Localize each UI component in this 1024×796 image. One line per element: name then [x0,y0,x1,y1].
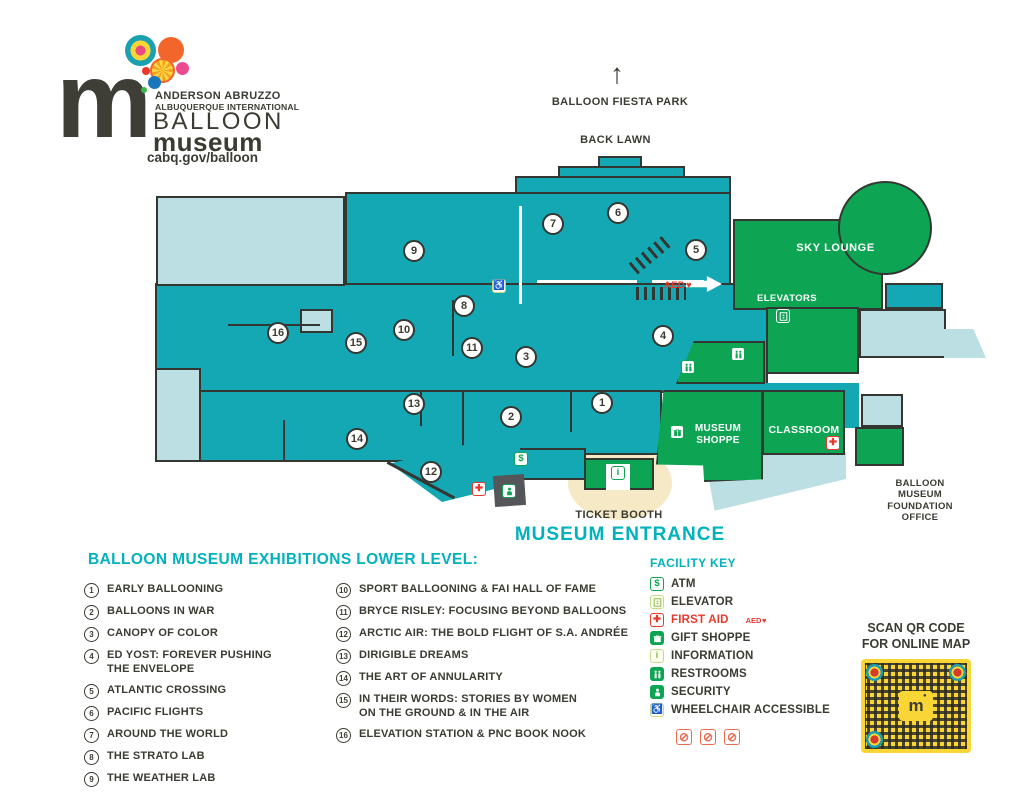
facility-key-label: RESTROOMS [671,668,747,680]
exhibition-item-1: 1EARLY BALLOONING [84,583,334,598]
floor-map: SKY LOUNGE ELEVATORS MUSEUM SHOPPE CLASS… [0,0,1024,560]
facility-key-item: ♿WHEELCHAIR ACCESSIBLE [650,703,860,717]
security-icon [650,685,664,699]
elevator-icon [650,595,664,609]
qr-center-balloons-icon: ● [923,693,926,699]
restrooms-icon [731,347,745,361]
exhibit-number-badge: 8 [84,750,99,765]
exhibit-marker-5: 5 [685,239,707,261]
map-right-strip [885,283,943,309]
facility-key-label: INFORMATION [671,650,753,662]
exhibition-name: BRYCE RISLEY: FOCUSING BEYOND BALLOONS [359,605,626,619]
wheelchair-icon: ♿ [492,279,506,293]
elevators-label: ELEVATORS [743,293,831,304]
qr-finder-icon [866,731,883,748]
wall-interior-2 [283,420,285,462]
back-lawn-label: BACK LAWN [558,134,673,147]
exhibition-name: CANOPY OF COLOR [107,627,218,641]
exhibit-number-badge: 1 [84,583,99,598]
qr-block: SCAN QR CODE FOR ONLINE MAP m ● [856,620,976,753]
exhibit-marker-16: 16 [267,322,289,344]
wheelchair-icon: ♿ [650,703,664,717]
prohibited-icons-row: ⊘⊘⊘ [676,729,860,745]
exhibition-item-2: 2BALLOONS IN WAR [84,605,334,620]
facility-key-title: FACILITY KEY [650,556,860,570]
facility-key-item: ELEVATOR [650,595,860,609]
exhibit-marker-11: 11 [461,337,483,359]
exhibit-number-badge: 9 [84,772,99,787]
map-storage-leftcol [155,368,201,462]
exhibit-number-badge: 10 [336,583,351,598]
exhibition-item-10: 10SPORT BALLOONING & FAI HALL OF FAME [336,583,636,598]
facility-key-label: ATM [671,578,696,590]
exhibition-item-13: 13DIRIGIBLE DREAMS [336,649,636,664]
map-storage-mid [300,309,333,333]
foundation-office-label: BALLOON MUSEUM FOUNDATION OFFICE [870,478,970,524]
sky-lounge-label: SKY LOUNGE [768,242,903,255]
classroom-label: CLASSROOM [764,424,844,437]
elevator-icon [776,309,790,323]
exhibit-number-badge: 13 [336,649,351,664]
qr-finder-icon [866,664,883,681]
exhibit-number-badge: 7 [84,728,99,743]
exhibit-number-badge: 4 [84,649,99,664]
exhibition-name: BALLOONS IN WAR [107,605,215,619]
exhibition-item-9: 9THE WEATHER LAB [84,772,334,787]
exhibition-name: ATLANTIC CROSSING [107,684,226,698]
exhibition-name: PACIFIC FLIGHTS [107,706,203,720]
map-storage-topleft [156,196,345,286]
exhibit-marker-14: 14 [346,428,368,450]
facility-key-item: SECURITY [650,685,860,699]
information-icon: i [611,466,625,480]
museum-shoppe-label: MUSEUM SHOPPE [672,423,764,447]
exhibition-name: ELEVATION STATION & PNC BOOK NOOK [359,728,586,742]
atm-icon: $ [650,577,664,591]
gift-icon [650,631,664,645]
exhibition-name: ARCTIC AIR: THE BOLD FLIGHT OF S.A. ANDR… [359,627,628,641]
exhibition-item-4: 4ED YOST: FOREVER PUSHING THE ENVELOPE [84,649,334,677]
facility-key-item: $ATM [650,577,860,591]
facility-key-item: ✚FIRST AIDAED ♥ [650,613,860,627]
exhibit-marker-1: 1 [591,392,613,414]
facility-key-item: GIFT SHOPPE [650,631,860,645]
exhibit-number-badge: 16 [336,728,351,743]
first-aid-icon: ✚ [650,613,664,627]
information-icon: i [650,649,664,663]
exhibition-name: EARLY BALLOONING [107,583,223,597]
museum-entrance-label: MUSEUM ENTRANCE [500,524,740,547]
exhibitions-title: BALLOON MUSEUM EXHIBITIONS LOWER LEVEL: [88,551,478,569]
qr-finder-icon [949,664,966,681]
fiesta-park-label: BALLOON FIESTA PARK [540,96,700,109]
map-storage-right-small [861,394,903,427]
exhibition-name: IN THEIR WORDS: STORIES BY WOMEN ON THE … [359,693,577,721]
facility-key-label: SECURITY [671,686,731,698]
exhibition-name: THE STRATO LAB [107,750,205,764]
exhibition-item-8: 8THE STRATO LAB [84,750,334,765]
exhibition-name: THE WEATHER LAB [107,772,216,786]
exhibitions-column-2: 10SPORT BALLOONING & FAI HALL OF FAME11B… [336,583,636,743]
exhibit-marker-10: 10 [393,319,415,341]
exhibition-item-6: 6PACIFIC FLIGHTS [84,706,334,721]
restrooms-icon [681,360,695,374]
facility-key-label: FIRST AID [671,614,729,626]
exhibition-item-11: 11BRYCE RISLEY: FOCUSING BEYOND BALLOONS [336,605,636,620]
walkway-vertical [519,206,522,304]
facility-key-label: GIFT SHOPPE [671,632,751,644]
exhibition-item-7: 7AROUND THE WORLD [84,728,334,743]
walkway-horizontal-1 [537,280,637,283]
exhibit-number-badge: 3 [84,627,99,642]
exhibit-marker-12: 12 [420,461,442,483]
atm-icon: $ [514,452,528,466]
facility-key: FACILITY KEY $ATMELEVATOR✚FIRST AIDAED ♥… [650,556,860,745]
exhibition-item-12: 12ARCTIC AIR: THE BOLD FLIGHT OF S.A. AN… [336,627,636,642]
map-storage-right-tab [944,329,986,358]
aed-note: AED ♥ [746,616,767,625]
exhibit-marker-4: 4 [652,325,674,347]
map-strip-right-of-classroom [843,390,859,428]
aed-label: AED ♥ [664,280,692,291]
facility-key-item: iINFORMATION [650,649,860,663]
exhibit-number-badge: 5 [84,684,99,699]
first-aid-icon: ✚ [826,436,840,450]
facility-key-label: WHEELCHAIR ACCESSIBLE [671,704,830,716]
exhibit-number-badge: 14 [336,671,351,686]
exhibition-name: ED YOST: FOREVER PUSHING THE ENVELOPE [107,649,272,677]
exhibition-name: THE ART OF ANNULARITY [359,671,503,685]
exhibit-number-badge: 6 [84,706,99,721]
qr-code-icon: m ● [861,659,971,753]
room-foundation-green [855,427,904,466]
exhibit-marker-3: 3 [515,346,537,368]
exhibit-marker-2: 2 [500,406,522,428]
wall-interior-5 [570,392,572,432]
map-storage-right-big [859,309,946,358]
exhibition-name: SPORT BALLOONING & FAI HALL OF FAME [359,583,596,597]
exhibition-item-5: 5ATLANTIC CROSSING [84,684,334,699]
exhibit-number-badge: 11 [336,605,351,620]
exhibitions-column-1: 1EARLY BALLOONING2BALLOONS IN WAR3CANOPY… [84,583,334,787]
no-drinks-icon: ⊘ [724,729,740,745]
exhibit-number-badge: 12 [336,627,351,642]
qr-center-logo: m [899,691,933,721]
exhibit-marker-7: 7 [542,213,564,235]
exhibit-marker-9: 9 [403,240,425,262]
no-smoking-icon: ⊘ [676,729,692,745]
exhibit-marker-8: 8 [453,295,475,317]
exhibition-name: AROUND THE WORLD [107,728,228,742]
exhibition-item-15: 15IN THEIR WORDS: STORIES BY WOMEN ON TH… [336,693,636,721]
exhibition-item-3: 3CANOPY OF COLOR [84,627,334,642]
exhibit-number-badge: 2 [84,605,99,620]
no-food-icon: ⊘ [700,729,716,745]
room-sky-lounge-circle [838,181,932,275]
exhibit-marker-13: 13 [403,393,425,415]
exhibition-name: DIRIGIBLE DREAMS [359,649,469,663]
exhibit-marker-15: 15 [345,332,367,354]
qr-caption: SCAN QR CODE FOR ONLINE MAP [856,620,976,653]
exhibit-marker-6: 6 [607,202,629,224]
exhibit-number-badge: 15 [336,693,351,708]
museum-map-page: m ANDERSON ABRUZZO ALBUQUERQUE INTERNATI… [0,0,1024,796]
restrooms-icon [650,667,664,681]
security-icon [502,484,516,498]
first-aid-icon: ✚ [472,482,486,496]
exhibition-item-14: 14THE ART OF ANNULARITY [336,671,636,686]
exhibition-item-16: 16ELEVATION STATION & PNC BOOK NOOK [336,728,636,743]
facility-key-label: ELEVATOR [671,596,733,608]
facility-key-item: RESTROOMS [650,667,860,681]
ticket-booth-label: TICKET BOOTH [568,509,670,522]
